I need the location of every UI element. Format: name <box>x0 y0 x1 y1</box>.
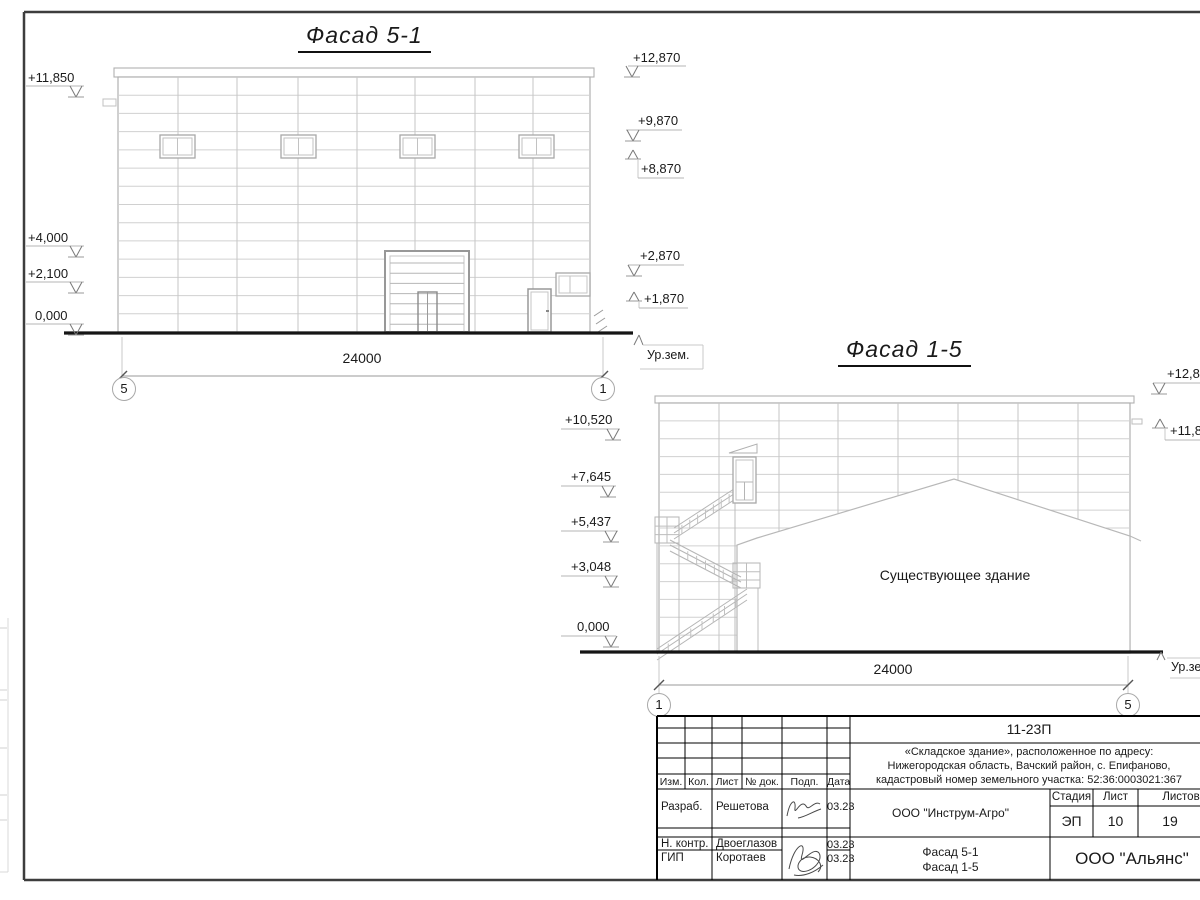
elevation-mark: +2,870 <box>640 248 680 263</box>
titleblock-date: 03.23 <box>827 801 850 813</box>
ground-level-label: Ур.зем <box>1171 660 1200 674</box>
elevation-mark: 0,000 <box>35 308 68 323</box>
drawing-sheet: Фасад 5-1 +11,850 +4,000 +2,100 0,000 +1… <box>0 0 1200 900</box>
elevation-mark: +2,100 <box>28 266 68 281</box>
facade15-title: Фасад 1-5 <box>838 336 971 367</box>
titleblock-project-line: кадастровый номер земельного участка: 52… <box>852 774 1200 786</box>
elevation-mark: +9,870 <box>638 113 678 128</box>
stage-value: ЭП <box>1050 813 1093 829</box>
titleblock-col-header: Кол. <box>685 776 712 788</box>
facade51-title: Фасад 5-1 <box>298 22 431 53</box>
titleblock-project-line: «Складское здание», расположенное по адр… <box>852 746 1200 758</box>
titleblock-organization: ООО "Инструм-Агро" <box>852 806 1049 820</box>
elevation-mark: +7,645 <box>571 469 611 484</box>
titleblock-date: 03.23 <box>827 839 850 851</box>
titleblock-col-header: № док. <box>742 776 782 788</box>
titleblock-col-header: Дата <box>827 776 850 788</box>
sheet-value: 10 <box>1093 813 1138 829</box>
elevation-mark: +11,850 <box>1170 423 1200 438</box>
elevation-mark: +11,850 <box>28 70 74 85</box>
titleblock-name: Решетова <box>716 801 769 813</box>
elevation-mark: +8,870 <box>641 161 681 176</box>
sheets-label: Листов <box>1138 791 1200 803</box>
titleblock-role: Разраб. <box>661 801 702 813</box>
axis-bubble: 1 <box>591 377 615 401</box>
elevation-mark: 0,000 <box>577 619 610 634</box>
elevation-mark: +12,870 <box>633 50 680 65</box>
stage-label: Стадия <box>1050 791 1093 803</box>
axis-bubble: 1 <box>647 693 671 717</box>
ground-level-label: Ур.зем. <box>647 348 689 362</box>
titleblock-code: 11-23П <box>852 721 1200 737</box>
titleblock-name: Двоеглазов <box>716 838 777 850</box>
titleblock-col-header: Подп. <box>782 776 827 788</box>
axis-bubble: 5 <box>112 377 136 401</box>
dimension-label: 24000 <box>853 661 933 677</box>
titleblock-name: Коротаев <box>716 852 766 864</box>
elevation-mark: +5,437 <box>571 514 611 529</box>
sheet-label: Лист <box>1093 791 1138 803</box>
titleblock-col-header: Лист <box>712 776 742 788</box>
titleblock-role: Н. контр. <box>661 838 708 850</box>
titleblock-date: 03.23 <box>827 853 850 865</box>
dimension-label: 24000 <box>322 350 402 366</box>
axis-bubble: 5 <box>1116 693 1140 717</box>
sheets-value: 19 <box>1138 813 1200 829</box>
titleblock-project-line: Нижегородская область, Вачский район, с.… <box>852 760 1200 772</box>
elevation-mark: +10,520 <box>565 412 612 427</box>
titleblock-company: ООО "Альянс" <box>1052 849 1200 869</box>
elevation-mark: +3,048 <box>571 559 611 574</box>
titleblock-content-line: Фасад 1-5 <box>852 860 1049 874</box>
elevation-mark: +4,000 <box>28 230 68 245</box>
titleblock-content-line: Фасад 5-1 <box>852 845 1049 859</box>
titleblock-role: ГИП <box>661 852 684 864</box>
titleblock-col-header: Изм. <box>657 776 685 788</box>
elevation-mark: +1,870 <box>644 291 684 306</box>
existing-building-note: Существующее здание <box>870 567 1040 583</box>
elevation-mark: +12,870 <box>1167 366 1200 381</box>
